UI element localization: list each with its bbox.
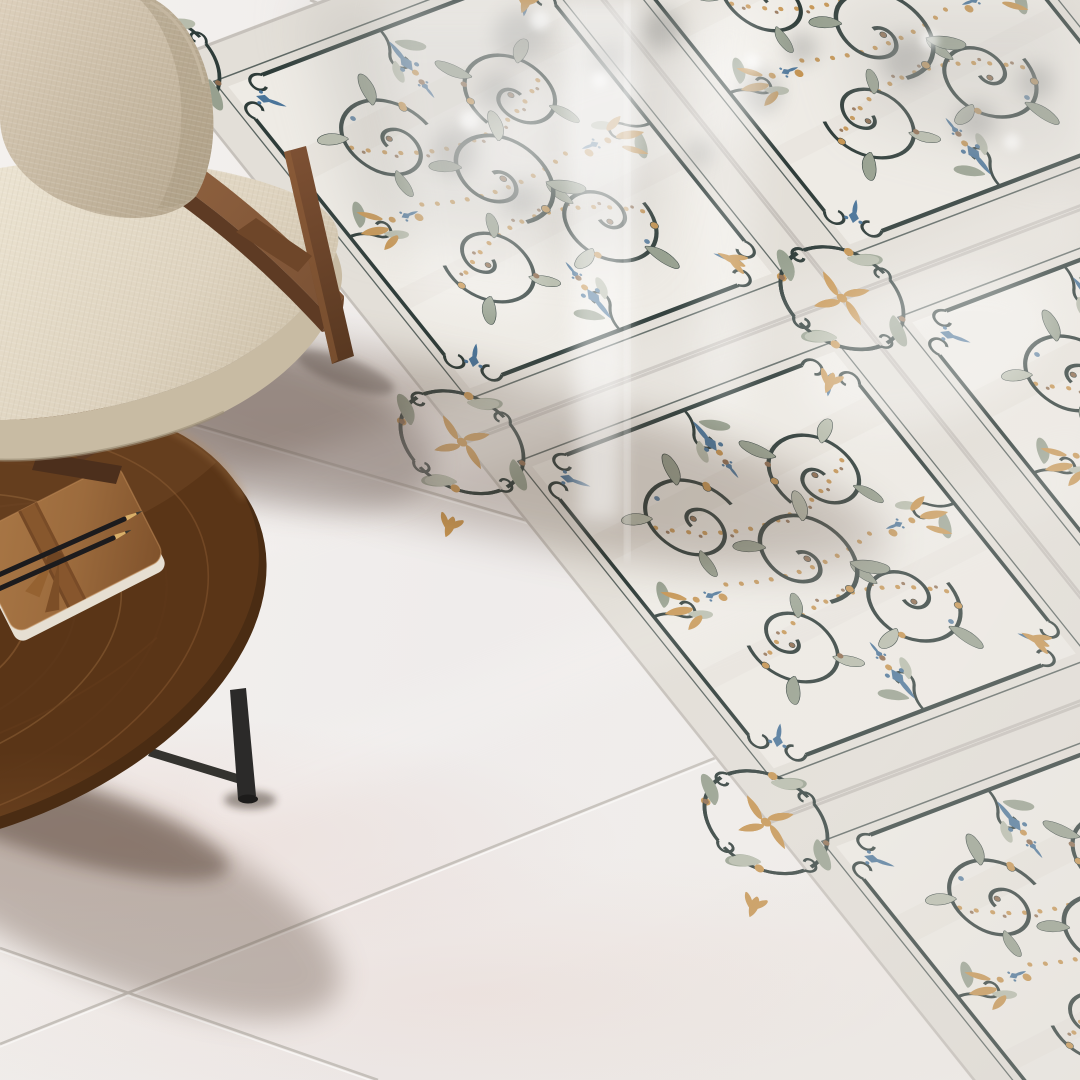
furniture-layer bbox=[0, 0, 1080, 1080]
table-leg-foot bbox=[238, 795, 258, 804]
armchair bbox=[0, 0, 354, 484]
scene bbox=[0, 0, 1080, 1080]
